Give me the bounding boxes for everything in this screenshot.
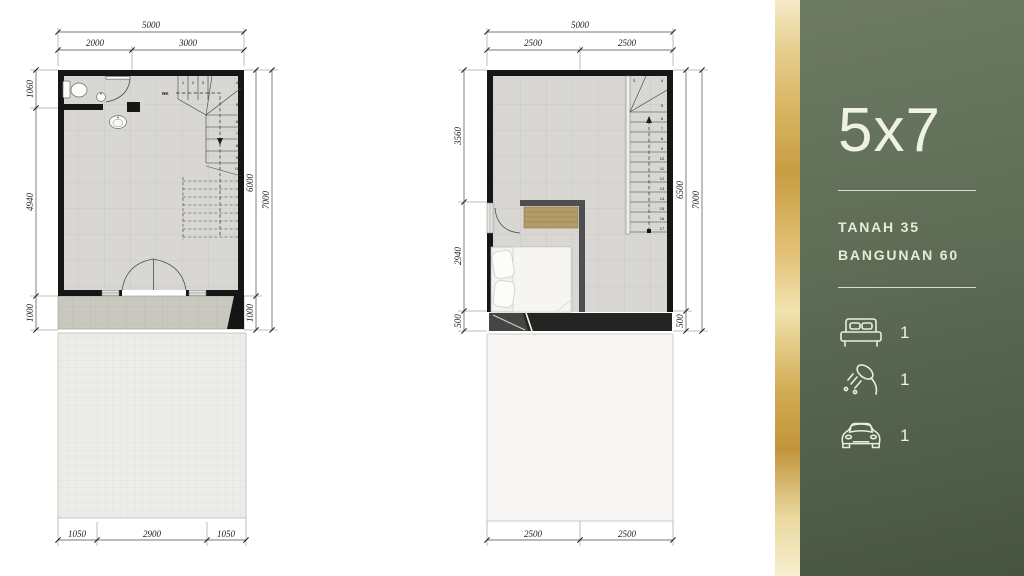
bathroom-count: 1 bbox=[900, 370, 909, 390]
svg-text:500: 500 bbox=[675, 314, 685, 328]
svg-text:13: 13 bbox=[660, 186, 665, 191]
front-porch bbox=[58, 296, 244, 329]
svg-text:2940: 2940 bbox=[453, 247, 463, 266]
svg-text:7000: 7000 bbox=[691, 191, 701, 210]
car-icon bbox=[838, 418, 884, 454]
bathroom-wall bbox=[58, 104, 103, 110]
land-area-label: TANAH 35 bbox=[838, 219, 920, 235]
svg-text:1000: 1000 bbox=[25, 304, 35, 323]
pillow bbox=[492, 280, 515, 308]
toilet-bowl bbox=[71, 83, 87, 97]
svg-text:5000: 5000 bbox=[571, 20, 590, 30]
svg-text:1050: 1050 bbox=[217, 529, 236, 539]
stair-rail bbox=[626, 76, 630, 234]
building-area-label: BANGUNAN 60 bbox=[838, 247, 959, 263]
toilet-icon bbox=[63, 81, 70, 98]
info-panel: 5x7 TANAH 35 BANGUNAN 60 1 bbox=[800, 0, 1024, 576]
svg-text:17: 17 bbox=[660, 226, 665, 231]
bedroom-count-row: 1 bbox=[838, 315, 909, 351]
bed bbox=[491, 247, 571, 312]
svg-text:3560: 3560 bbox=[453, 127, 463, 147]
svg-text:1060: 1060 bbox=[25, 80, 35, 99]
shower-icon bbox=[838, 362, 884, 398]
svg-text:6500: 6500 bbox=[675, 181, 685, 200]
svg-text:3000: 3000 bbox=[178, 38, 198, 48]
svg-text:16: 16 bbox=[660, 216, 665, 221]
divider bbox=[838, 287, 976, 288]
svg-text:500: 500 bbox=[453, 314, 463, 328]
plan-size-title: 5x7 bbox=[838, 100, 941, 162]
gold-accent-stripe bbox=[775, 0, 800, 576]
svg-text:2900: 2900 bbox=[143, 529, 162, 539]
svg-text:1050: 1050 bbox=[68, 529, 87, 539]
svg-text:1000: 1000 bbox=[245, 304, 255, 323]
svg-text:15: 15 bbox=[660, 206, 665, 211]
floor-plans-canvas: NK 1 2 3 4 5 6 7 8 9 10 bbox=[0, 0, 780, 576]
svg-text:4940: 4940 bbox=[25, 193, 35, 212]
ground-floor-plan: NK 1 2 3 4 5 6 7 8 9 10 bbox=[25, 20, 278, 546]
lower-roof-area bbox=[487, 334, 673, 521]
carport-count-row: 1 bbox=[838, 418, 909, 454]
left-wall-window bbox=[487, 203, 493, 233]
headboard-shelf bbox=[524, 207, 578, 228]
washbasin-icon bbox=[110, 116, 127, 129]
svg-text:14: 14 bbox=[660, 196, 665, 201]
svg-text:6000: 6000 bbox=[245, 174, 255, 193]
bathroom-count-row: 1 bbox=[838, 362, 909, 398]
bed-icon bbox=[838, 315, 884, 351]
balcony-strip bbox=[489, 313, 672, 331]
svg-text:2500: 2500 bbox=[524, 38, 543, 48]
svg-text:2000: 2000 bbox=[86, 38, 105, 48]
carport-count: 1 bbox=[900, 426, 909, 446]
svg-text:2500: 2500 bbox=[618, 38, 637, 48]
svg-text:2500: 2500 bbox=[618, 529, 637, 539]
svg-text:10: 10 bbox=[660, 156, 665, 161]
stair-start-post bbox=[647, 229, 651, 233]
upper-floor-plan: 3 4 5 6 7 8 9 10 11 12 13 14 15 16 17 bbox=[453, 20, 708, 546]
brochure-page: NK 1 2 3 4 5 6 7 8 9 10 bbox=[0, 0, 1024, 576]
stair-up-label: NK bbox=[162, 91, 169, 96]
svg-text:5000: 5000 bbox=[142, 20, 161, 30]
svg-text:7000: 7000 bbox=[261, 191, 271, 210]
divider bbox=[838, 190, 976, 191]
front-yard bbox=[58, 333, 246, 518]
svg-text:12: 12 bbox=[660, 176, 665, 181]
svg-text:2500: 2500 bbox=[524, 529, 543, 539]
pillow bbox=[491, 250, 515, 280]
svg-text:10: 10 bbox=[235, 166, 240, 171]
front-windows bbox=[102, 291, 206, 296]
bedroom-count: 1 bbox=[900, 323, 909, 343]
